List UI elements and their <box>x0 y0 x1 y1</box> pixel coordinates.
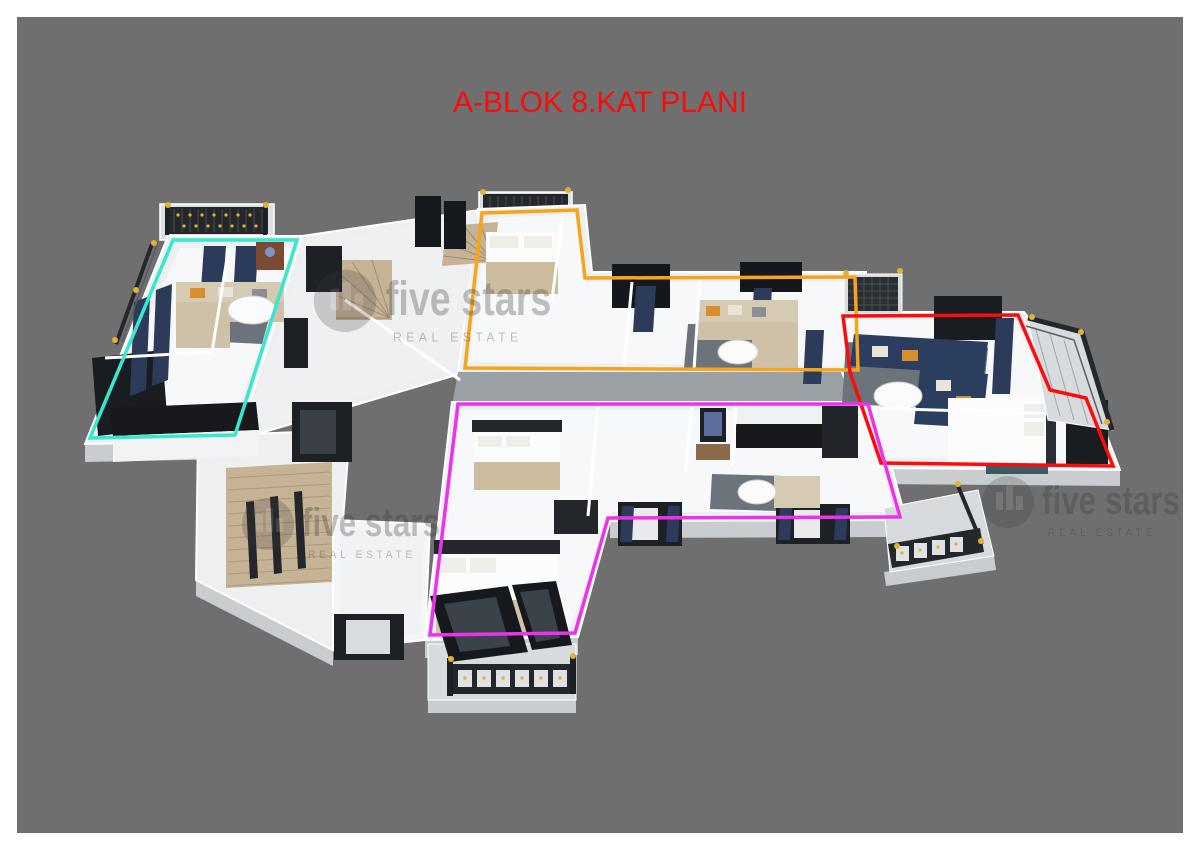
curtain <box>803 330 824 384</box>
balcony-top-left <box>160 204 274 240</box>
window-frame <box>415 196 441 247</box>
bed-headboard <box>434 540 560 554</box>
watermark-text: five stars <box>386 273 552 326</box>
watermark-subtext: REAL ESTATE <box>393 330 523 345</box>
coffee-table <box>228 296 276 324</box>
curtain <box>778 508 792 540</box>
coffee-table <box>874 382 922 410</box>
console-table <box>696 444 730 460</box>
floorplan-svg: five starsREAL ESTATEfive starsREAL ESTA… <box>0 0 1200 850</box>
watermark-subtext: REAL ESTATE <box>308 549 416 561</box>
curtain <box>633 286 656 332</box>
tv-panel <box>934 296 1002 340</box>
coffee-table <box>718 340 758 364</box>
watermark-subtext: REAL ESTATE <box>1048 527 1156 539</box>
curtain <box>620 506 634 542</box>
balcony-bottom-middle <box>428 581 576 700</box>
sofa-beige <box>774 476 820 508</box>
floorplan-render: five starsREAL ESTATEfive starsREAL ESTA… <box>0 0 1200 850</box>
tv-panel <box>284 318 308 368</box>
watermark-text: five stars <box>1042 479 1180 523</box>
watermark-text: five stars <box>302 501 440 545</box>
wardrobe <box>554 500 598 534</box>
kitchen-tall-unit <box>822 406 858 458</box>
curtain <box>666 506 680 542</box>
window-frame <box>444 201 466 249</box>
dining-table <box>738 480 776 504</box>
plan-title: A-BLOK 8.KAT PLANI <box>453 86 747 119</box>
bed-headboard <box>472 420 562 432</box>
curtain <box>834 508 848 540</box>
balcony-between-units <box>844 274 902 314</box>
